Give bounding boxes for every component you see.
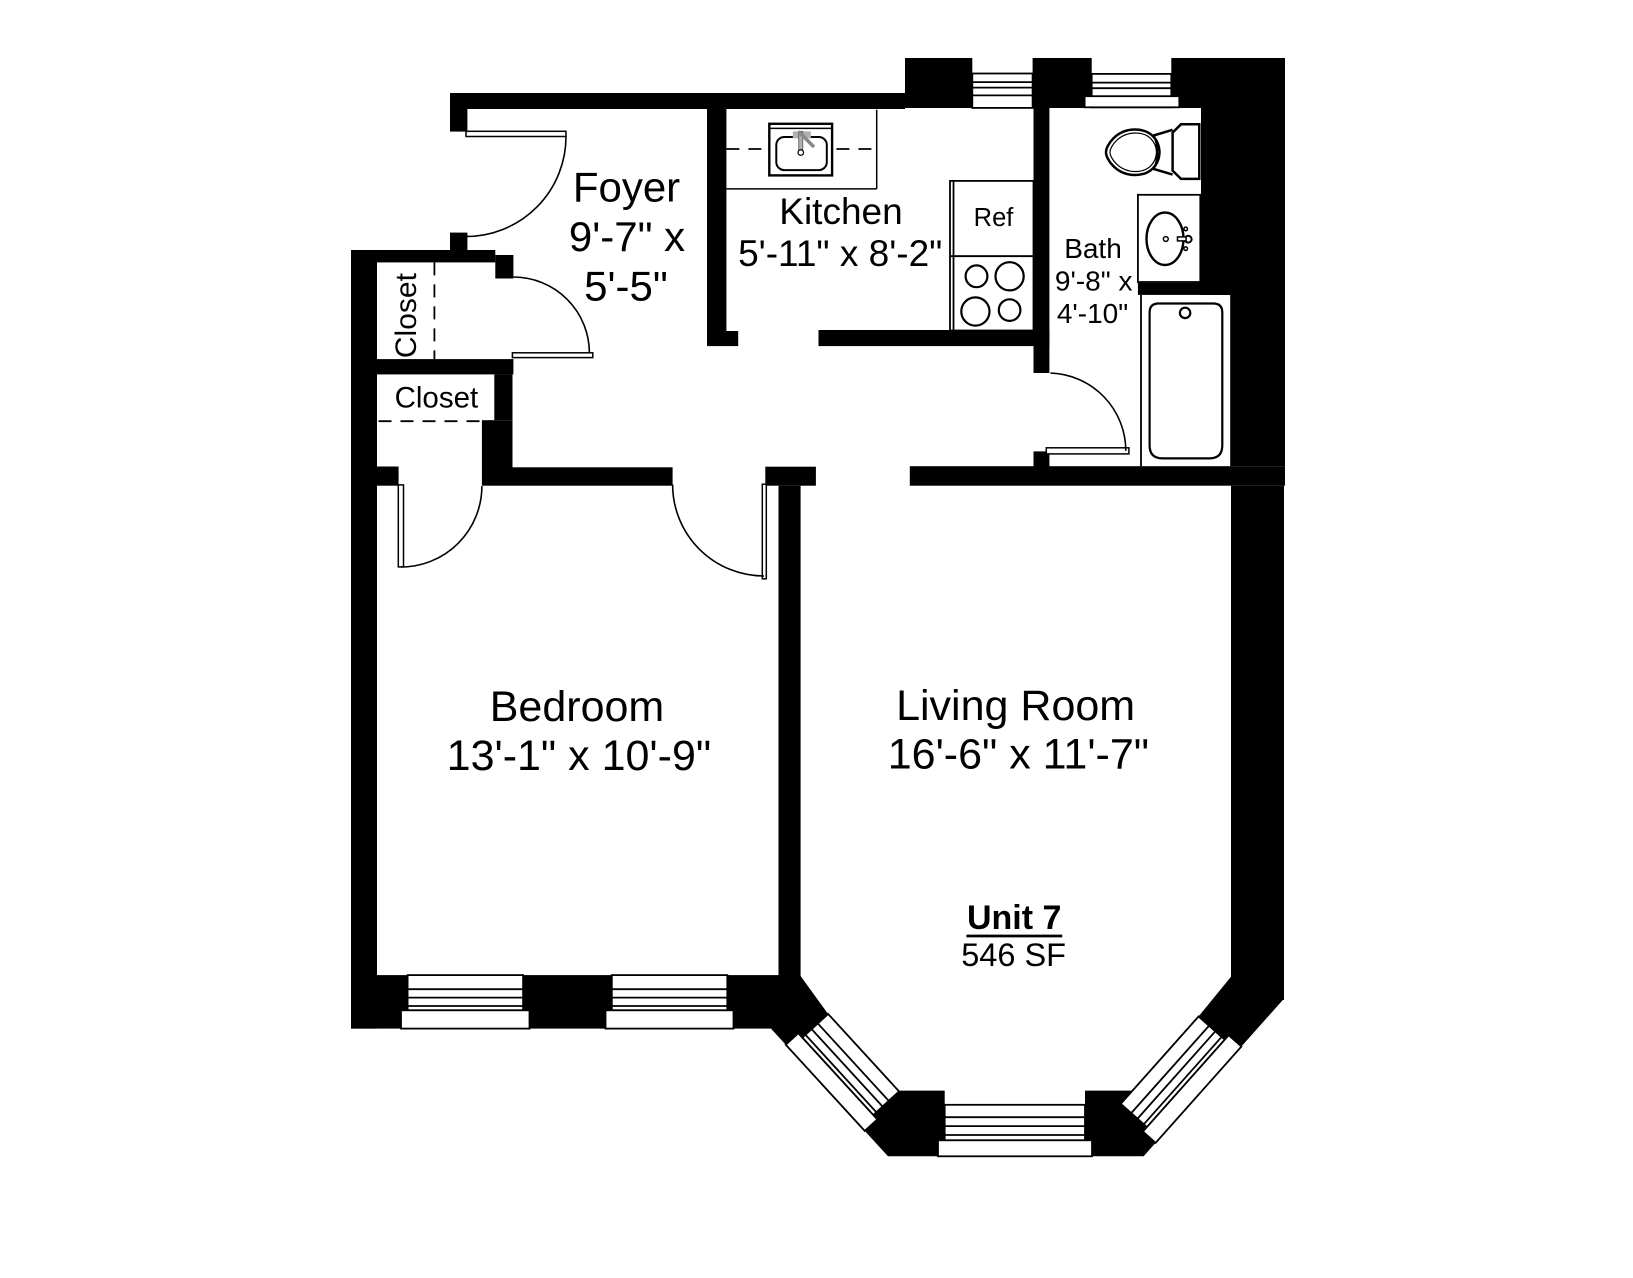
svg-text:5'-5": 5'-5" bbox=[584, 263, 668, 310]
svg-text:Unit 7: Unit 7 bbox=[967, 899, 1061, 937]
svg-text:13'-1" x 10'-9": 13'-1" x 10'-9" bbox=[447, 732, 711, 780]
svg-text:Bedroom: Bedroom bbox=[490, 683, 664, 731]
svg-text:5'-11" x 8'-2": 5'-11" x 8'-2" bbox=[738, 233, 942, 274]
svg-text:546 SF: 546 SF bbox=[961, 937, 1066, 973]
svg-text:16'-6" x 11'-7": 16'-6" x 11'-7" bbox=[888, 731, 1149, 779]
svg-text:9'-7" x: 9'-7" x bbox=[569, 213, 685, 260]
svg-text:Bath: Bath bbox=[1064, 233, 1122, 264]
svg-text:Kitchen: Kitchen bbox=[779, 191, 902, 232]
svg-text:Foyer: Foyer bbox=[573, 163, 680, 210]
svg-text:Closet: Closet bbox=[395, 381, 479, 414]
svg-text:Closet: Closet bbox=[390, 272, 423, 358]
svg-text:4'-10": 4'-10" bbox=[1057, 298, 1128, 329]
svg-text:9'-8" x: 9'-8" x bbox=[1055, 266, 1133, 297]
svg-text:Living Room: Living Room bbox=[896, 682, 1135, 730]
svg-text:Ref: Ref bbox=[974, 204, 1015, 232]
